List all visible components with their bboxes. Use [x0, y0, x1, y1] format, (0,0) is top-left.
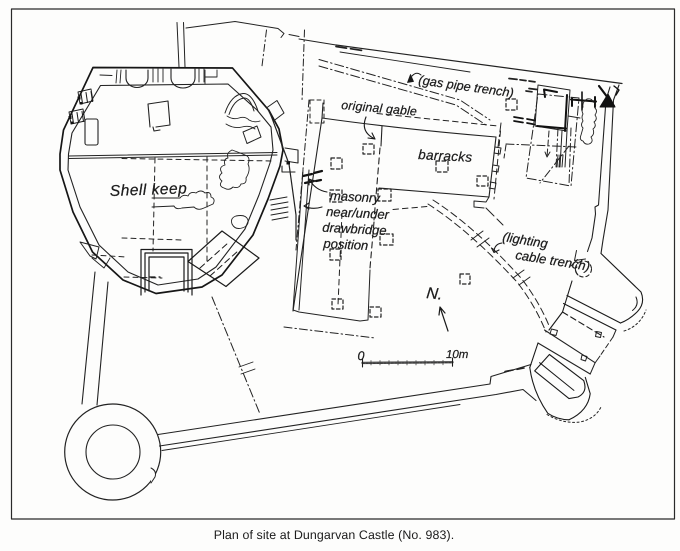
svg-text:10m: 10m	[446, 349, 469, 361]
svg-text:original gable: original gable	[341, 98, 418, 119]
svg-text:cable trench): cable trench)	[515, 247, 592, 274]
svg-text:masonry: masonry	[330, 188, 382, 206]
svg-text:(gas pipe trench): (gas pipe trench)	[418, 72, 515, 100]
svg-text:0: 0	[358, 349, 365, 363]
svg-text:Shell keep: Shell keep	[110, 180, 188, 200]
svg-text:barracks: barracks	[418, 147, 473, 165]
svg-text:N.: N.	[426, 285, 444, 304]
svg-text:position: position	[322, 236, 369, 253]
